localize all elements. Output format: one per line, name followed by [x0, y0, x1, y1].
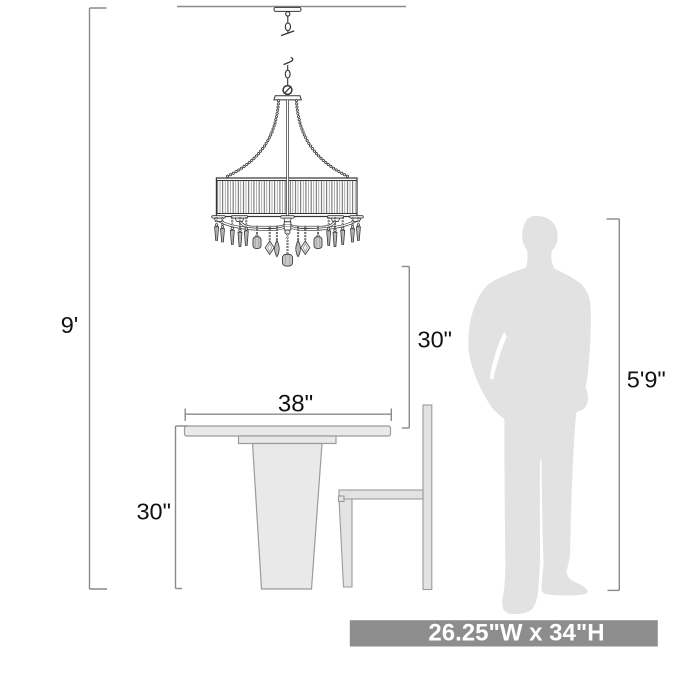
svg-text:38": 38" — [278, 390, 313, 417]
svg-text:9': 9' — [61, 312, 79, 338]
svg-text:30": 30" — [136, 499, 170, 525]
svg-text:30": 30" — [418, 327, 452, 353]
svg-text:5'9": 5'9" — [627, 366, 666, 392]
svg-text:26.25"W x 34"H: 26.25"W x 34"H — [428, 620, 604, 647]
